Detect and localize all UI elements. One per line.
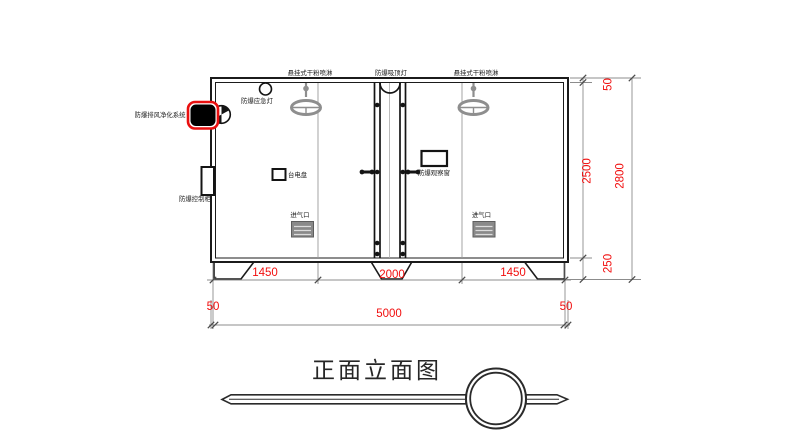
dim-wall-left: 50: [207, 301, 220, 313]
label-sprinkler-left: 悬挂式干粉喷淋: [288, 68, 333, 77]
power-panel-box: [273, 169, 286, 180]
dim-roof: 50: [603, 78, 615, 91]
title-circle-inner: [470, 373, 522, 425]
emergency-light-icon: [260, 83, 272, 95]
air-inlet-vent-right: [473, 222, 495, 238]
observation-window-box: [422, 151, 448, 166]
label-ceiling-light: 防爆吸顶灯: [375, 68, 408, 77]
label-control-cabinet: 防爆控制柜: [179, 194, 212, 203]
dim-seg-left: 1450: [252, 267, 278, 279]
label-air-inlet-left: 进气口: [290, 210, 309, 219]
exhaust-unit-box: [191, 105, 215, 126]
air-inlet-vent-left: [292, 222, 314, 238]
title-block: 正面立面图: [222, 358, 568, 429]
dim-base: 250: [603, 254, 615, 273]
label-emergency-light: 防爆应急灯: [241, 96, 274, 105]
dim-total-height: 2800: [615, 163, 627, 189]
label-observation-window: 防爆观察窗: [418, 168, 450, 177]
control-cabinet-box: [202, 167, 215, 195]
label-sprinkler-right: 悬挂式干粉喷淋: [454, 68, 499, 77]
bottom-dimensions: 1450 2000 1450 50 5000 50: [207, 263, 573, 329]
elevation-drawing: 悬挂式干粉喷淋 防爆吸顶灯 悬挂式干粉喷淋 防爆应急灯 防爆排风净化系统 防爆控…: [0, 0, 800, 445]
foot-right: [525, 262, 565, 279]
dim-seg-right: 1450: [500, 267, 526, 279]
dim-seg-mid: 2000: [379, 269, 405, 281]
right-dimensions: 50 2500 2800 250: [567, 75, 641, 283]
label-air-inlet-right: 进气口: [472, 210, 491, 219]
foot-left: [214, 262, 254, 279]
dim-wall-right: 50: [560, 301, 573, 313]
dim-total-width: 5000: [376, 308, 402, 320]
label-power-panel: 台电盘: [288, 170, 308, 179]
drawing-title: 正面立面图: [312, 358, 442, 383]
elevation-drawing-canvas: 悬挂式干粉喷淋 防爆吸顶灯 悬挂式干粉喷淋 防爆应急灯 防爆排风净化系统 防爆控…: [0, 0, 800, 445]
dim-inner-height: 2500: [582, 158, 594, 184]
extension-lines-right: [567, 78, 641, 280]
dimension-ticks: [208, 277, 571, 328]
label-exhaust-system: 防爆排风净化系统: [134, 110, 186, 119]
